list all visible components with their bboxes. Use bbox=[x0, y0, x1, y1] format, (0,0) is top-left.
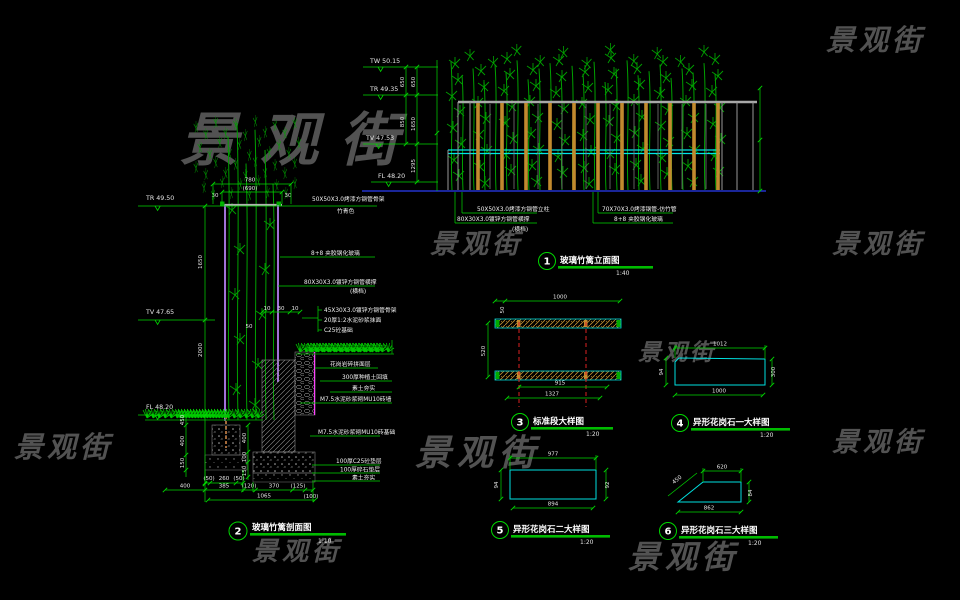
note-text: 竹青色 bbox=[337, 207, 355, 215]
title-label: 异形花岗石二大样图 bbox=[513, 524, 590, 535]
dim-text: 450 bbox=[671, 474, 683, 486]
note-text: 素土夯实 bbox=[352, 384, 375, 392]
dim-text: 620 bbox=[717, 465, 728, 471]
title-scale: 1:40 bbox=[616, 270, 630, 277]
detail-6: 620 450 862 84 6 异形花岗石三大样图 1:20 bbox=[660, 465, 779, 548]
title-label: 异形花岗石一大样图 bbox=[693, 417, 770, 428]
dim-text: 260 bbox=[219, 476, 230, 482]
dim-text: 94 bbox=[494, 481, 500, 488]
dim-text: 50 bbox=[246, 324, 253, 330]
dim-text: 150 bbox=[180, 457, 186, 468]
level-text: TV 47.53 bbox=[365, 135, 394, 142]
dim-text: 400 bbox=[242, 432, 248, 443]
note-text: 70X70X3.0烤漆钢管-仿竹管 bbox=[602, 205, 677, 213]
elevation-drawing: TW 50.15 TR 49.35 TV 47.53 FL 48.20 650 … bbox=[362, 43, 766, 277]
dim-text: 370 bbox=[269, 484, 280, 490]
level-text: TR 49.50 bbox=[145, 195, 174, 202]
dim-text: 1012 bbox=[713, 342, 727, 348]
title-detail-4: 4 异形花岗石一大样图 1:20 bbox=[672, 415, 791, 440]
dim-text: 1327 bbox=[545, 392, 559, 398]
dim-text: (690) bbox=[243, 186, 258, 192]
dim-text: 894 bbox=[548, 502, 559, 508]
dim-text: 650 bbox=[400, 76, 406, 87]
dim-text: 650 bbox=[411, 76, 417, 87]
cad-canvas: 景观街 景观街 景观街 景观街 景观街 景观街 景观街 景观街 景观街 景观街 bbox=[0, 0, 960, 600]
note-text: 80X30X3.0镀锌方钢管横撑 bbox=[304, 278, 377, 286]
dim-text: 915 bbox=[555, 381, 566, 387]
watermark-text: 景观街 bbox=[430, 229, 524, 260]
dim-text: 400 bbox=[180, 484, 191, 490]
section-notes: 50X50X3.0烤漆方钢管骨架 竹青色 8+8 夹胶钢化玻璃 80X30X3.… bbox=[278, 195, 397, 482]
watermark-text: 景观街 bbox=[832, 427, 926, 458]
cad-sheet: 景观街 景观街 景观街 景观街 景观街 景观街 景观街 景观街 景观街 景观街 bbox=[0, 0, 960, 600]
note-text: 45X30X3.0镀锌方钢管骨架 bbox=[324, 306, 397, 314]
dim-text: 94 bbox=[659, 368, 665, 375]
dim-text: 100 bbox=[242, 451, 248, 462]
note-text: 8+8 夹胶钢化玻璃 bbox=[614, 215, 663, 223]
dim-text: 50 bbox=[500, 306, 506, 313]
title-detail-5: 5 异形花岗石二大样图 1:20 bbox=[492, 522, 611, 547]
dim-text: 850 bbox=[400, 116, 406, 127]
note-text: 300厚种植土回填 bbox=[342, 373, 388, 381]
note-text: 素土夯实 bbox=[352, 474, 375, 482]
note-text: C25砼基础 bbox=[324, 326, 353, 334]
title-scale: 1:20 bbox=[586, 431, 600, 438]
dim-text: 1000 bbox=[553, 295, 567, 301]
title-label: 标准段大样图 bbox=[532, 416, 584, 427]
note-text: 20厚1:2水泥砂浆抹面 bbox=[324, 316, 381, 324]
level-text: TR 49.35 bbox=[369, 86, 398, 93]
watermark-text: 景观街 bbox=[415, 433, 541, 474]
title-number: 2 bbox=[235, 527, 242, 538]
title-number: 3 bbox=[517, 418, 524, 429]
title-scale: 1:20 bbox=[580, 539, 594, 546]
dim-text: 1000 bbox=[712, 389, 726, 395]
section-drawing: TR 49.50 TV 47.65 FL 48.20 780 (690) 30 … bbox=[138, 115, 397, 545]
dim-text: 977 bbox=[548, 452, 559, 458]
section-left-dims: 1650 2000 450 400 150 bbox=[180, 204, 207, 486]
level-text: TW 50.15 bbox=[369, 58, 400, 65]
note-text: 100厚碎石垫层 bbox=[340, 466, 380, 474]
watermark-text: 景观街 bbox=[628, 538, 740, 576]
title-number: 6 bbox=[665, 527, 672, 538]
title-number: 4 bbox=[677, 419, 684, 430]
title-label: 异形花岗石三大样图 bbox=[681, 525, 758, 536]
note-text: 100厚C25砼垫层 bbox=[336, 457, 382, 465]
title-number: 1 bbox=[544, 257, 551, 268]
title-scale: 1:20 bbox=[760, 432, 774, 439]
dim-text: 862 bbox=[704, 506, 715, 512]
dim-text: (125) bbox=[291, 484, 306, 490]
note-text: (横档) bbox=[512, 225, 528, 233]
level-text: TV 47.65 bbox=[145, 309, 174, 316]
note-text: 80X30X3.0镀锌方钢管横撑 bbox=[457, 215, 530, 223]
elevation-notes: 50X50X3.0烤漆方钢管立柱 80X30X3.0镀锌方钢管横撑 (横档) 7… bbox=[455, 192, 677, 233]
note-text: 50X50X3.0烤漆方钢管骨架 bbox=[312, 195, 385, 203]
dim-text: 92 bbox=[605, 482, 611, 489]
title-scale: 1:20 bbox=[748, 540, 762, 547]
title-label: 玻璃竹篱立面图 bbox=[560, 255, 620, 266]
watermark-text: 景观街 bbox=[638, 340, 717, 366]
dim-text: 1295 bbox=[411, 159, 417, 173]
title-label: 玻璃竹篱剖面图 bbox=[252, 522, 312, 533]
dim-text: 84 bbox=[748, 489, 754, 496]
watermark-text: 景观街 bbox=[832, 229, 926, 260]
title-scale: 1:10 bbox=[318, 538, 332, 545]
level-text: FL 48.20 bbox=[378, 173, 405, 180]
note-text: 花岗岩碎拼面层 bbox=[330, 360, 371, 368]
note-text: 50X50X3.0烤漆方钢管立柱 bbox=[477, 205, 550, 213]
dim-text: 450 bbox=[180, 414, 186, 425]
dim-text: 1650 bbox=[411, 117, 417, 131]
dim-text: 1650 bbox=[198, 255, 204, 269]
dim-text: 10 bbox=[292, 306, 299, 312]
dim-text: (120) bbox=[242, 484, 257, 490]
level-text: FL 48.20 bbox=[146, 404, 173, 411]
detail-3: 1000 50 520 915 1327 3 标准段大样图 1:20 bbox=[481, 295, 622, 439]
dim-text: 300 bbox=[771, 366, 777, 377]
dim-text: 2000 bbox=[198, 343, 204, 357]
dim-text: 10 bbox=[264, 306, 271, 312]
watermark-text: 景观街 bbox=[14, 430, 114, 464]
dim-text: 385 bbox=[219, 484, 230, 490]
dim-text: 400 bbox=[180, 435, 186, 446]
title-number: 5 bbox=[497, 526, 504, 537]
dim-text: 780 bbox=[245, 178, 256, 184]
note-text: 8+8 夹胶钢化玻璃 bbox=[311, 249, 360, 257]
dim-text: 520 bbox=[481, 345, 487, 356]
watermark-text: 景观街 bbox=[826, 23, 926, 57]
note-text: M7.5水泥砂浆砌MU10砖墙 bbox=[320, 395, 392, 403]
note-text: (横档) bbox=[350, 287, 366, 295]
note-text: M7.5水泥砂浆砌MU10砖基础 bbox=[318, 428, 395, 436]
dim-text: 30 bbox=[278, 306, 285, 312]
section-top-dims: 780 (690) 30 30 bbox=[211, 178, 293, 205]
dim-text: 30 bbox=[212, 193, 219, 199]
dim-text: 1065 bbox=[257, 494, 271, 500]
title-elevation: 1 玻璃竹篱立面图 1:40 bbox=[539, 253, 654, 278]
